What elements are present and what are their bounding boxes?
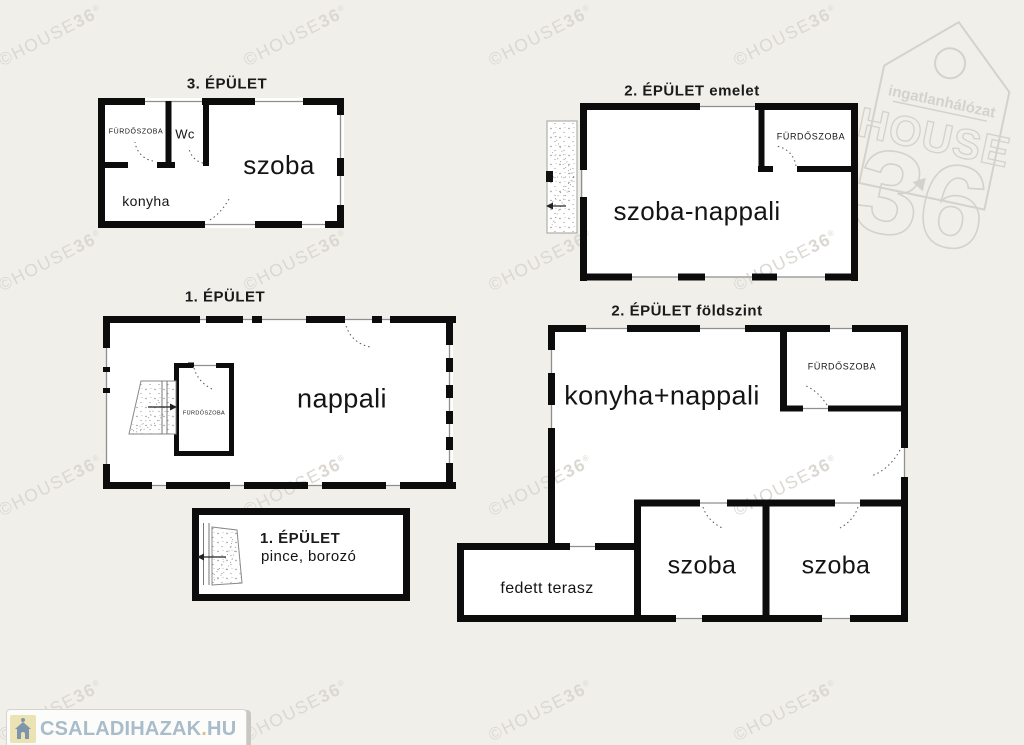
room-label-wc: Wc [175, 128, 195, 141]
building-1-walls [103, 316, 456, 489]
room-label-szoba: szoba [243, 152, 314, 178]
house-icon [10, 715, 36, 743]
building-2-upper-walls [546, 103, 858, 281]
building-2-upper-title: 2. ÉPÜLET emelet [624, 84, 760, 99]
room-label-konyha-nappali: konyha+nappali [564, 383, 760, 410]
floorplan-page: 3. ÉPÜLET FÜRDŐSZOBA Wc szoba konyha 2. … [0, 0, 1024, 745]
room-label-bathroom: FÜRDŐSZOBA [808, 363, 877, 372]
staircase-icon [197, 523, 242, 585]
tag-hole [932, 45, 968, 81]
staircase-icon [546, 121, 577, 233]
building-1-cellar-subtitle: pince, borozó [261, 549, 356, 564]
room-label-szoba: szoba [668, 554, 737, 579]
house36-logo: ingatlanhálózat HOUSE 36 [838, 0, 1024, 256]
room-label-bathroom: FÜRDŐSZOBA [109, 129, 164, 136]
csaladihazak-logo: CSALADIHAZAK.HU [6, 709, 247, 745]
site-name: CSALADIHAZAK.HU [40, 718, 236, 741]
building-1-title: 1. ÉPÜLET [185, 290, 265, 305]
room-label-nappali: nappali [297, 386, 387, 413]
building-3-title: 3. ÉPÜLET [187, 77, 267, 92]
building-1-cellar-title: 1. ÉPÜLET [260, 531, 340, 546]
room-label-fedett-terasz: fedett terasz [500, 581, 593, 597]
room-label-szoba: szoba [802, 554, 871, 579]
room-label-bathroom: FÜRDŐSZOBA [183, 411, 225, 417]
room-label-szoba-nappali: szoba-nappali [613, 198, 780, 224]
room-label-bathroom: FÜRDŐSZOBA [777, 133, 846, 142]
room-label-konyha: konyha [122, 194, 170, 208]
building-2-ground-title: 2. ÉPÜLET földszint [611, 304, 762, 319]
